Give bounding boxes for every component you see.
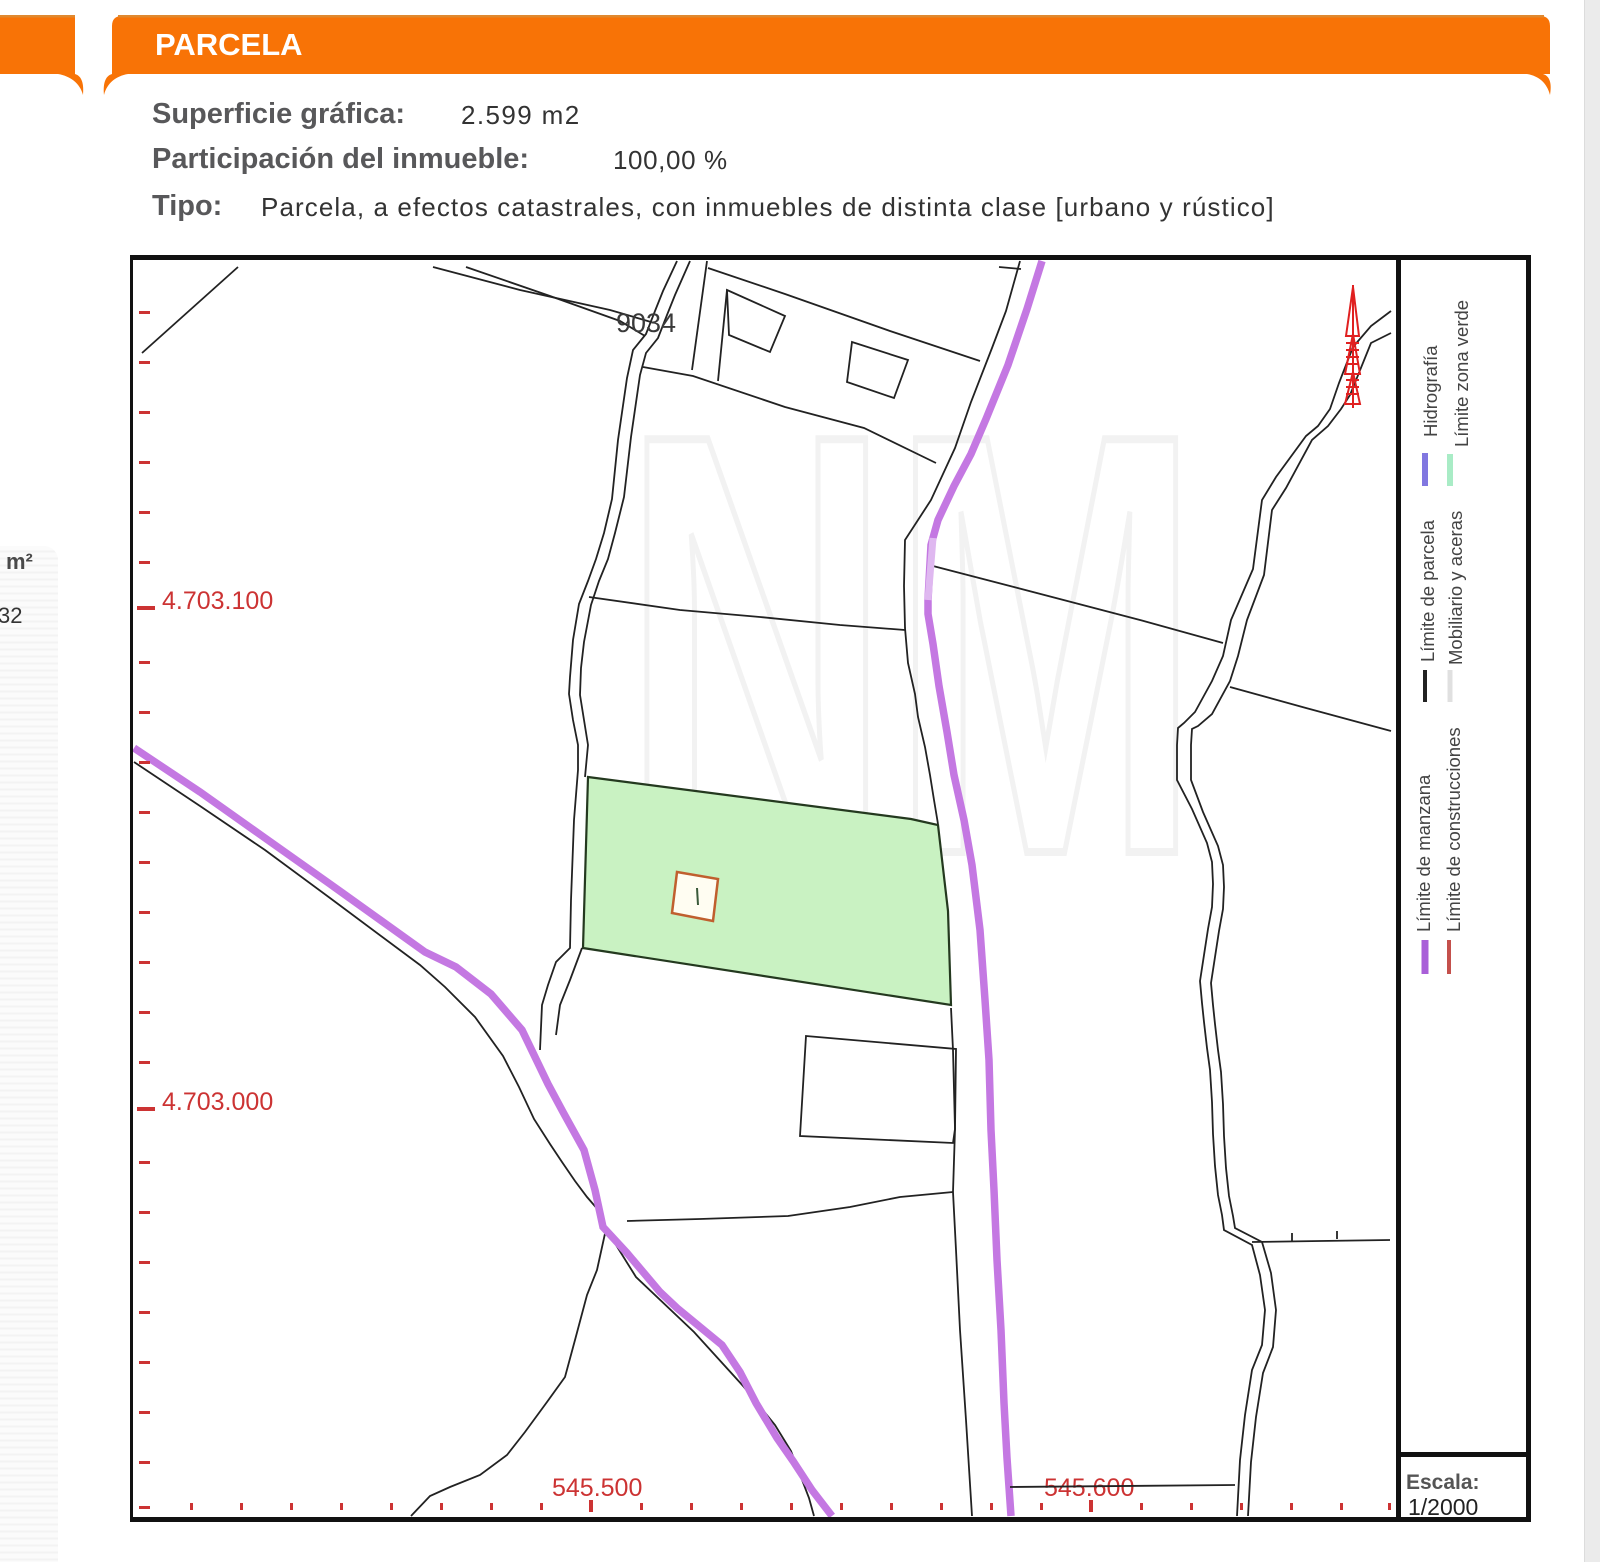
svg-text:4.703.000: 4.703.000 (162, 1088, 273, 1116)
svg-text:Límite de manzana: Límite de manzana (1413, 774, 1434, 932)
svg-text:545.500: 545.500 (552, 1474, 642, 1502)
svg-text:Escala:: Escala: (1406, 1471, 1480, 1494)
svg-text:Límite de construcciones: Límite de construcciones (1443, 727, 1464, 932)
svg-text:545.600: 545.600 (1044, 1474, 1134, 1502)
svg-text:9034: 9034 (616, 308, 676, 338)
svg-text:4.703.100: 4.703.100 (162, 587, 273, 615)
svg-text:Límite de parcela: Límite de parcela (1417, 519, 1438, 662)
svg-text:Hidrografía: Hidrografía (1420, 345, 1441, 437)
svg-text:PARCELA: PARCELA (155, 27, 303, 62)
svg-text:Mobiliario y aceras: Mobiliario y aceras (1445, 511, 1466, 665)
svg-text:Límite zona verde: Límite zona verde (1451, 300, 1472, 447)
svg-text:1/2000: 1/2000 (1408, 1494, 1478, 1520)
